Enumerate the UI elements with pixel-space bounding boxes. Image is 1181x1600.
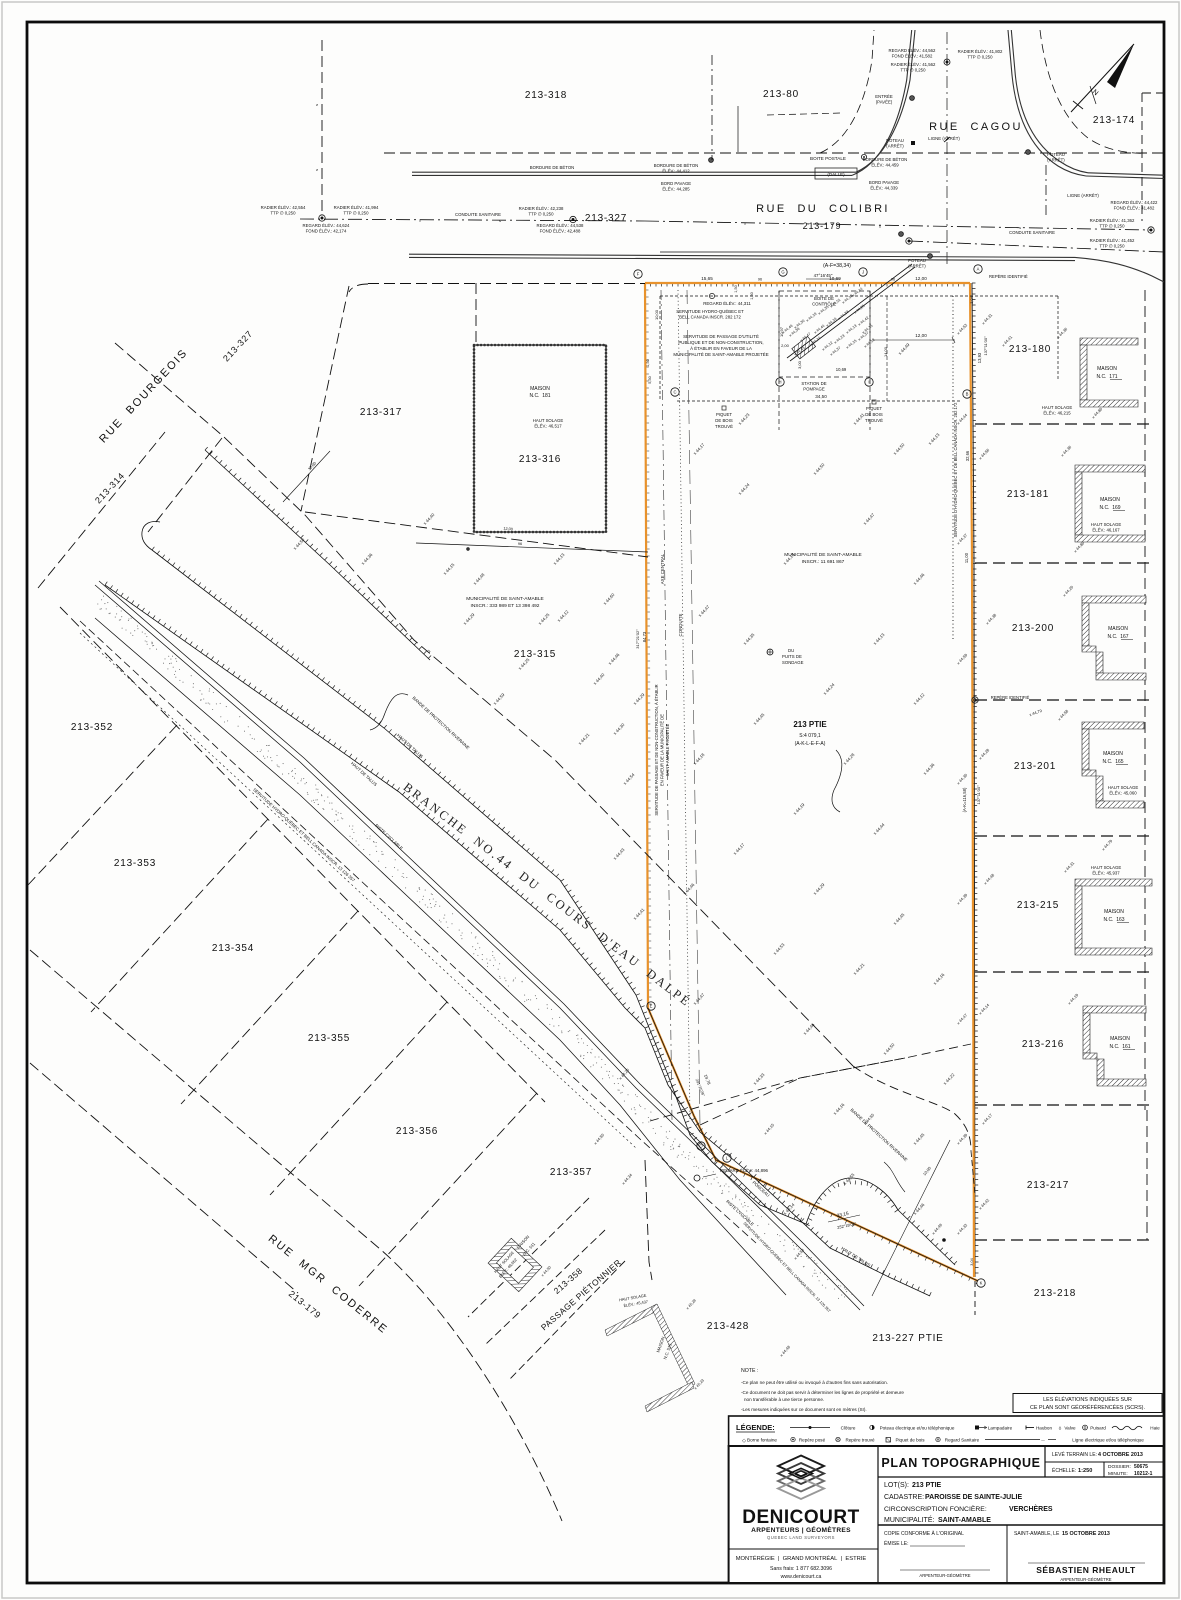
svg-text:HAUT SOLAGE: HAUT SOLAGE [533, 418, 564, 423]
svg-text:TROUVÉ: TROUVÉ [715, 424, 733, 429]
svg-text:PUITS DE: PUITS DE [782, 654, 802, 659]
svg-text:QUEBEC LAND SURVEYORS: QUEBEC LAND SURVEYORS [767, 1535, 835, 1540]
svg-text:s: s [419, 218, 421, 223]
svg-text:137°11'00": 137°11'00" [983, 336, 988, 356]
svg-text:12,00: 12,00 [915, 276, 927, 281]
svg-text:213-352: 213-352 [71, 722, 113, 733]
svg-text:12,00: 12,00 [915, 333, 927, 338]
svg-text:J: J [862, 270, 864, 275]
svg-text:213-218: 213-218 [1034, 1288, 1076, 1299]
svg-text:N.C. 171: N.C. 171 [1096, 374, 1117, 380]
svg-text:Repère posé: Repère posé [799, 1438, 826, 1443]
svg-text:POTEAU: POTEAU [908, 258, 926, 263]
svg-text:(DALLE): (DALLE) [827, 172, 845, 177]
svg-text:PAROISSE DE SAINTE-JULIE: PAROISSE DE SAINTE-JULIE [925, 1494, 1022, 1501]
svg-text:-Ce document ne doit pas servi: -Ce document ne doit pas servir à déterm… [741, 1390, 904, 1395]
svg-text:LIGNE (ARRÊT): LIGNE (ARRÊT) [1067, 193, 1099, 198]
svg-text:S:4 079,1: S:4 079,1 [799, 733, 821, 739]
svg-text:ARPENTEUR-GÉOMÈTRE: ARPENTEUR-GÉOMÈTRE [1060, 1577, 1111, 1582]
svg-text:PUBLIQUE ET DE NON-CONSTRUCTIO: PUBLIQUE ET DE NON-CONSTRUCTION, [678, 340, 763, 345]
svg-text:◇: ◇ [742, 1438, 746, 1444]
svg-text:-Ce plan ne peut être utilisé: -Ce plan ne peut être utilisé ou invoqué… [741, 1380, 888, 1385]
svg-text:REPÈRE IDENTIFIÉ: REPÈRE IDENTIFIÉ [991, 695, 1030, 700]
svg-text:HAUT SOLAGE: HAUT SOLAGE [1091, 522, 1122, 527]
svg-text:LEVÉ TERRAIN LE:: LEVÉ TERRAIN LE: [1052, 1451, 1097, 1458]
svg-text:11,00: 11,00 [964, 552, 969, 563]
svg-text:DE BOIS: DE BOIS [865, 412, 883, 417]
svg-text:MAISON: MAISON [1104, 909, 1124, 915]
svg-text:ÉLÉV.: 45,060: ÉLÉV.: 45,060 [1109, 790, 1137, 795]
svg-text:BORDURE DE BÉTON: BORDURE DE BÉTON [863, 157, 908, 162]
svg-text:317°21'02": 317°21'02" [635, 629, 640, 649]
svg-text:213-428: 213-428 [707, 1321, 749, 1332]
svg-text:SAINT-AMABLE, LE: SAINT-AMABLE, LE [1014, 1531, 1060, 1537]
svg-text:s: s [744, 221, 746, 226]
svg-text:96: 96 [518, 542, 522, 546]
svg-text:BORDURE DE BÉTON: BORDURE DE BÉTON [654, 163, 699, 168]
svg-text:MONTÉRÉGIE | GRAND MONTRÉAL: MONTÉRÉGIE | GRAND MONTRÉAL | ESTRIE [736, 1555, 867, 1562]
svg-text:RADIER ÉLÉV.: 41,562: RADIER ÉLÉV.: 41,562 [891, 62, 936, 67]
svg-text:LIGNE (ARRÊT): LIGNE (ARRÊT) [928, 136, 960, 141]
svg-text:FOND ÉLÉV.: 42,174: FOND ÉLÉV.: 42,174 [306, 228, 347, 233]
svg-text:RADIER ÉLÉV.: 42,238: RADIER ÉLÉV.: 42,238 [519, 206, 564, 211]
svg-text:LES ÉLÉVATIONS INDIQUÉES SUR: LES ÉLÉVATIONS INDIQUÉES SUR [1043, 1396, 1132, 1403]
svg-text:213-315: 213-315 [514, 649, 556, 660]
svg-text:Clôture: Clôture [841, 1426, 856, 1431]
svg-text:FOND ÉLÉV.: 41,582: FOND ÉLÉV.: 41,582 [892, 53, 933, 58]
svg-text:84,73: 84,73 [642, 631, 647, 642]
svg-text:RUE CAGOU: RUE CAGOU [929, 121, 1023, 133]
svg-text:(A-K-L-E-F-A): (A-K-L-E-F-A) [795, 741, 826, 747]
svg-text:STATION DE: STATION DE [801, 381, 826, 386]
svg-text:96: 96 [758, 278, 762, 282]
svg-text:10212-1: 10212-1 [1134, 1471, 1153, 1477]
svg-text:REGARD ÉLÉV.: 44,624: REGARD ÉLÉV.: 44,624 [303, 223, 351, 228]
svg-text:C: C [673, 390, 676, 395]
svg-text:Lampadaire: Lampadaire [988, 1426, 1013, 1431]
svg-text:RADIER ÉLÉV.: 41,994: RADIER ÉLÉV.: 41,994 [334, 205, 379, 210]
svg-text:BORD PAVAGE: BORD PAVAGE [869, 180, 899, 185]
svg-text:BELL CANADA INSCR. 282 172: BELL CANADA INSCR. 282 172 [679, 314, 741, 319]
svg-text:DOSSIER:: DOSSIER: [1108, 1464, 1131, 1470]
svg-text:s: s [499, 218, 501, 223]
svg-text:SAINT-AMABLE PROJETÉE: SAINT-AMABLE PROJETÉE [665, 723, 670, 776]
svg-text:s: s [879, 224, 881, 229]
svg-text:Poteau électrique et/ou téléph: Poteau électrique et/ou téléphonique [880, 1426, 955, 1431]
svg-text:MINUTE:: MINUTE: [1108, 1471, 1128, 1477]
svg-text:MAISON: MAISON [530, 386, 550, 392]
svg-text:E: E [650, 1004, 653, 1009]
svg-text:SONDAGE: SONDAGE [782, 660, 804, 665]
svg-text:MAISON: MAISON [1097, 366, 1117, 372]
svg-text:213-318: 213-318 [525, 90, 567, 101]
svg-text:POTEAU: POTEAU [1047, 152, 1065, 157]
svg-text:www.denicourt.ca: www.denicourt.ca [781, 1574, 822, 1580]
svg-text:MAISON: MAISON [1103, 751, 1123, 757]
svg-text:15,65: 15,65 [701, 276, 713, 281]
svg-text:MUNICIPALITÉ:: MUNICIPALITÉ: [884, 1515, 934, 1524]
svg-text:ÉLÉV.: 44,412: ÉLÉV.: 44,412 [662, 168, 690, 173]
svg-text:MUNICIPALITÉ DE SAINT-AMABLE P: MUNICIPALITÉ DE SAINT-AMABLE PROJETÉE [673, 352, 768, 357]
svg-text:TTP ∅ 0,250: TTP ∅ 0,250 [901, 67, 927, 72]
svg-text:I: I [868, 380, 869, 385]
svg-text:137°11'00": 137°11'00" [976, 785, 981, 805]
svg-text:ÉLÉV.: 45,937: ÉLÉV.: 45,937 [1092, 870, 1120, 875]
svg-text:213-227 PTIE: 213-227 PTIE [872, 1333, 943, 1344]
svg-text:15 OCTOBRE 2013: 15 OCTOBRE 2013 [1062, 1531, 1110, 1537]
svg-text:REGARD ÉLÉV.: 44,896: REGARD ÉLÉV.: 44,896 [720, 1168, 768, 1173]
svg-text:PLAN TOPOGRAPHIQUE: PLAN TOPOGRAPHIQUE [881, 1456, 1040, 1470]
svg-text:213 PTIE: 213 PTIE [912, 1482, 942, 1489]
svg-text:Borne fontaine: Borne fontaine [747, 1438, 777, 1443]
svg-text:TTP ∅ 0,250: TTP ∅ 0,250 [968, 54, 994, 59]
svg-text:10,97: 10,97 [779, 326, 784, 337]
svg-text:213-327: 213-327 [585, 213, 627, 224]
svg-text:INSCR.: 11 691 867: INSCR.: 11 691 867 [802, 559, 845, 565]
svg-text:REGARD ÉLÉV.: 44,422: REGARD ÉLÉV.: 44,422 [1111, 200, 1159, 205]
svg-text:4 OCTOBRE 2013: 4 OCTOBRE 2013 [1098, 1452, 1143, 1458]
svg-text:INSCR.: 333 989 ET 13 398 492: INSCR.: 333 989 ET 13 398 492 [471, 603, 540, 609]
svg-text:CIRCONSCRIPTION FONCIÈRE:: CIRCONSCRIPTION FONCIÈRE: [884, 1504, 987, 1513]
svg-text:ÉLÉV.: 44,285: ÉLÉV.: 44,285 [662, 186, 690, 191]
svg-text:SERVITUDE DE PASSAGE D'UTILITÉ: SERVITUDE DE PASSAGE D'UTILITÉ [683, 334, 759, 339]
svg-text:3,04: 3,04 [970, 1258, 974, 1265]
svg-text:MUNICIPALITÉ DE SAINT-AMABLE: MUNICIPALITÉ DE SAINT-AMABLE [784, 551, 861, 558]
svg-text:N.C. 161: N.C. 161 [1109, 1044, 1130, 1050]
svg-text:(PAVÉE): (PAVÉE) [876, 99, 893, 104]
svg-text:AXE CENTRAL: AXE CENTRAL [660, 553, 665, 584]
svg-text:5,50: 5,50 [648, 376, 652, 383]
svg-text:213-201: 213-201 [1014, 761, 1056, 772]
svg-text:―: ― [1041, 1439, 1045, 1443]
svg-text:Ligne électrique et/ou télépho: Ligne électrique et/ou téléphonique [1072, 1438, 1144, 1443]
svg-text:F: F [637, 272, 640, 277]
svg-text:Haubon: Haubon [1036, 1426, 1053, 1431]
svg-text:213-181: 213-181 [1007, 489, 1049, 500]
svg-text:TTP ∅ 0,250: TTP ∅ 0,250 [529, 211, 555, 216]
svg-text:À ÉTABLIR EN FAVEUR DE LA: À ÉTABLIR EN FAVEUR DE LA [690, 346, 752, 351]
svg-text:ÉLÉV.: 44,459: ÉLÉV.: 44,459 [871, 162, 899, 167]
svg-text:MAISON: MAISON [1108, 626, 1128, 632]
svg-text:213-317: 213-317 [360, 407, 402, 418]
svg-text:(A-K=116,58): (A-K=116,58) [962, 787, 967, 812]
svg-text:SAINT-AMABLE: SAINT-AMABLE [938, 1517, 991, 1524]
svg-text:13,93: 13,93 [977, 352, 982, 363]
svg-text:K: K [980, 1281, 983, 1286]
svg-text:B: B [966, 392, 969, 397]
svg-text:32,66: 32,66 [965, 450, 970, 461]
svg-text:ÉLÉV.: 46,517: ÉLÉV.: 46,517 [534, 423, 562, 428]
svg-text:ÉLÉV.: 44,339: ÉLÉV.: 44,339 [870, 185, 898, 190]
svg-text:N.C. 167: N.C. 167 [1107, 634, 1128, 640]
svg-text:DE BOIS: DE BOIS [715, 418, 733, 423]
svg-text:34,50: 34,50 [815, 394, 827, 399]
svg-text:Piquet de bois: Piquet de bois [895, 1438, 925, 1443]
svg-text:SERVITUDE HYDRO-QUÉBEC ET: SERVITUDE HYDRO-QUÉBEC ET [676, 309, 744, 314]
svg-text:non transférable à une tierce: non transférable à une tierce personne. [744, 1397, 824, 1402]
svg-text:TTP ∅ 0,250: TTP ∅ 0,250 [344, 210, 370, 215]
svg-text:MAISON: MAISON [1110, 1036, 1130, 1042]
svg-text:TTP ∅ 0,250: TTP ∅ 0,250 [271, 210, 297, 215]
svg-text:LOT(S):: LOT(S): [884, 1482, 909, 1489]
svg-text:NOTE :: NOTE : [741, 1368, 758, 1374]
svg-text:47°16'45": 47°16'45" [814, 273, 833, 278]
svg-text:1,50: 1,50 [734, 285, 738, 292]
svg-text:213-356: 213-356 [396, 1126, 438, 1137]
svg-text:RADIER ÉLÉV.: 41,452: RADIER ÉLÉV.: 41,452 [1090, 238, 1135, 243]
svg-text:213-180: 213-180 [1009, 344, 1051, 355]
svg-text:CADASTRE:: CADASTRE: [884, 1494, 924, 1501]
svg-text:213-316: 213-316 [519, 454, 561, 465]
svg-text:1,50: 1,50 [646, 359, 650, 366]
svg-text:1:250: 1:250 [1078, 1468, 1092, 1474]
svg-text:HAUT SOLAGE: HAUT SOLAGE [1091, 865, 1122, 870]
svg-text:213-80: 213-80 [763, 89, 799, 100]
svg-text:EN FAVEUR DE LA MUNICIPALITÉ D: EN FAVEUR DE LA MUNICIPALITÉ DE [660, 714, 665, 786]
svg-text:PIQUET: PIQUET [716, 412, 732, 417]
svg-text:Haie: Haie [1150, 1426, 1160, 1431]
svg-text:10,69: 10,69 [836, 367, 847, 372]
svg-text:POTEAU: POTEAU [886, 138, 904, 143]
svg-text:213-357: 213-357 [550, 1167, 592, 1178]
svg-text:50675: 50675 [1134, 1464, 1148, 1470]
svg-text:CONDUITE: CONDUITE [678, 613, 683, 636]
svg-text:REGARD ÉLÉV.: 44,562: REGARD ÉLÉV.: 44,562 [889, 48, 937, 53]
svg-text:COPIE CONFORME À L'ORIGINAL: COPIE CONFORME À L'ORIGINAL [884, 1530, 964, 1537]
svg-text:ÉMISE LE:: ÉMISE LE: [884, 1540, 908, 1547]
svg-text:(ARRÊT): (ARRÊT) [1047, 157, 1065, 162]
svg-text:3,00: 3,00 [797, 360, 802, 369]
svg-text:Repère trouvé: Repère trouvé [845, 1438, 875, 1443]
svg-text:(ARRÊT): (ARRÊT) [908, 263, 926, 268]
svg-text:213-354: 213-354 [212, 943, 254, 954]
svg-text:BOITE DE: BOITE DE [814, 296, 834, 301]
svg-text:TROUVÉ: TROUVÉ [865, 418, 883, 423]
svg-text:G: G [781, 270, 784, 275]
svg-text:-Les mesures indiquées sur ce: -Les mesures indiquées sur ce document s… [741, 1407, 867, 1412]
svg-text:VERCHÈRES: VERCHÈRES [1009, 1504, 1053, 1513]
svg-text:1,50: 1,50 [750, 292, 754, 299]
svg-text:TTP ∅ 0,250: TTP ∅ 0,250 [1100, 243, 1126, 248]
svg-text:REGARD ÉLÉV.: 44,311: REGARD ÉLÉV.: 44,311 [703, 301, 751, 306]
svg-text:ÉCHELLE:: ÉCHELLE: [1052, 1467, 1076, 1474]
svg-text:SERVITUDE DE PASSAGE ET DE NON: SERVITUDE DE PASSAGE ET DE NON-CONSTRUCT… [654, 684, 659, 815]
svg-text:FOND ÉLÉV.: 42,488: FOND ÉLÉV.: 42,488 [540, 228, 581, 233]
svg-text:s: s [314, 169, 319, 171]
svg-text:213 PTIE: 213 PTIE [793, 720, 827, 729]
svg-text:Valve: Valve [1064, 1426, 1076, 1431]
svg-text:N.C. 181: N.C. 181 [529, 393, 550, 399]
svg-text:10,00: 10,00 [654, 309, 659, 320]
svg-text:213-217: 213-217 [1027, 1180, 1069, 1191]
svg-text:POMPAGE: POMPAGE [803, 386, 825, 391]
svg-text:PIQUET: PIQUET [866, 406, 882, 411]
svg-text:CONDUITE SANITAIRE: CONDUITE SANITAIRE [1009, 230, 1055, 235]
svg-text:ÉLÉV.: 46,215: ÉLÉV.: 46,215 [1043, 410, 1071, 415]
svg-text:LÉGENDE:: LÉGENDE: [736, 1423, 775, 1432]
svg-text:RUE DU COLIBRI: RUE DU COLIBRI [756, 203, 890, 215]
svg-text:RADIER ÉLÉV.: 41,362: RADIER ÉLÉV.: 41,362 [1090, 218, 1135, 223]
svg-text:REGARD ÉLÉV.: 44,538: REGARD ÉLÉV.: 44,538 [537, 223, 585, 228]
svg-text:Sans frais: 1 877 682.3096: Sans frais: 1 877 682.3096 [770, 1566, 832, 1572]
svg-text:MUNICIPALITÉ DE SAINT-AMABLE: MUNICIPALITÉ DE SAINT-AMABLE [466, 595, 543, 602]
svg-text:RADIER ÉLÉV.: 41,802: RADIER ÉLÉV.: 41,802 [958, 49, 1003, 54]
svg-text:N.C. 169: N.C. 169 [1099, 505, 1120, 511]
svg-text:ARPENTEUR-GÉOMÈTRE: ARPENTEUR-GÉOMÈTRE [919, 1573, 970, 1578]
svg-text:FOND ÉLÉV.: 41,482: FOND ÉLÉV.: 41,482 [1114, 205, 1155, 210]
svg-text:BOITE POSTALE: BOITE POSTALE [810, 156, 846, 161]
svg-text:CE PLAN SONT GÉORÉFÉRENCÉES (S: CE PLAN SONT GÉORÉFÉRENCÉES (SCRS). [1030, 1404, 1145, 1411]
svg-text:ENTRÉE: ENTRÉE [875, 94, 893, 99]
svg-text:SÉBASTIEN RHEAULT: SÉBASTIEN RHEAULT [1036, 1565, 1136, 1575]
svg-text:CONDUITE SANITAIRE: CONDUITE SANITAIRE [455, 212, 501, 217]
svg-text:DU: DU [788, 648, 794, 653]
svg-text:(ARRÊT): (ARRÊT) [886, 143, 904, 148]
svg-text:BORDURE DE BÉTON: BORDURE DE BÉTON [530, 165, 575, 170]
svg-text:N.C. 163: N.C. 163 [1103, 917, 1124, 923]
svg-text:HAUT SOLAGE: HAUT SOLAGE [1108, 785, 1139, 790]
svg-text:3,04: 3,04 [970, 296, 974, 303]
svg-text:(A-F=38,34): (A-F=38,34) [823, 263, 851, 269]
svg-text:ÉLÉV.: 46,167: ÉLÉV.: 46,167 [1092, 527, 1120, 532]
svg-text:MAISON: MAISON [1100, 497, 1120, 503]
svg-text:REPÈRE IDENTIFIÉ: REPÈRE IDENTIFIÉ [989, 274, 1028, 279]
svg-text:213-216: 213-216 [1022, 1039, 1064, 1050]
svg-text:Puisard: Puisard [1090, 1426, 1106, 1431]
svg-text:BORD PAVAGE: BORD PAVAGE [661, 181, 691, 186]
svg-text:213-355: 213-355 [308, 1033, 350, 1044]
svg-text:HAUT SOLAGE: HAUT SOLAGE [1042, 405, 1073, 410]
svg-text:ARPENTEURS | GÉOMÈTRES: ARPENTEURS | GÉOMÈTRES [751, 1525, 851, 1534]
svg-text:A: A [977, 267, 980, 272]
svg-text:Regard Sanitaire: Regard Sanitaire [945, 1438, 980, 1443]
svg-text:213-200: 213-200 [1012, 623, 1054, 634]
svg-text:2,00: 2,00 [781, 343, 790, 348]
svg-text:DENICOURT: DENICOURT [742, 1507, 859, 1528]
svg-text:213-174: 213-174 [1093, 115, 1135, 126]
svg-text:RADIER ÉLÉV.: 42,554: RADIER ÉLÉV.: 42,554 [261, 205, 306, 210]
svg-text:213-179: 213-179 [803, 221, 842, 231]
svg-text:TTP ∅ 0,250: TTP ∅ 0,250 [1100, 223, 1126, 228]
svg-text:213-215: 213-215 [1017, 900, 1059, 911]
svg-text:213-353: 213-353 [114, 858, 156, 869]
svg-text:s: s [314, 104, 319, 106]
svg-text:N.C. 165: N.C. 165 [1102, 759, 1123, 765]
